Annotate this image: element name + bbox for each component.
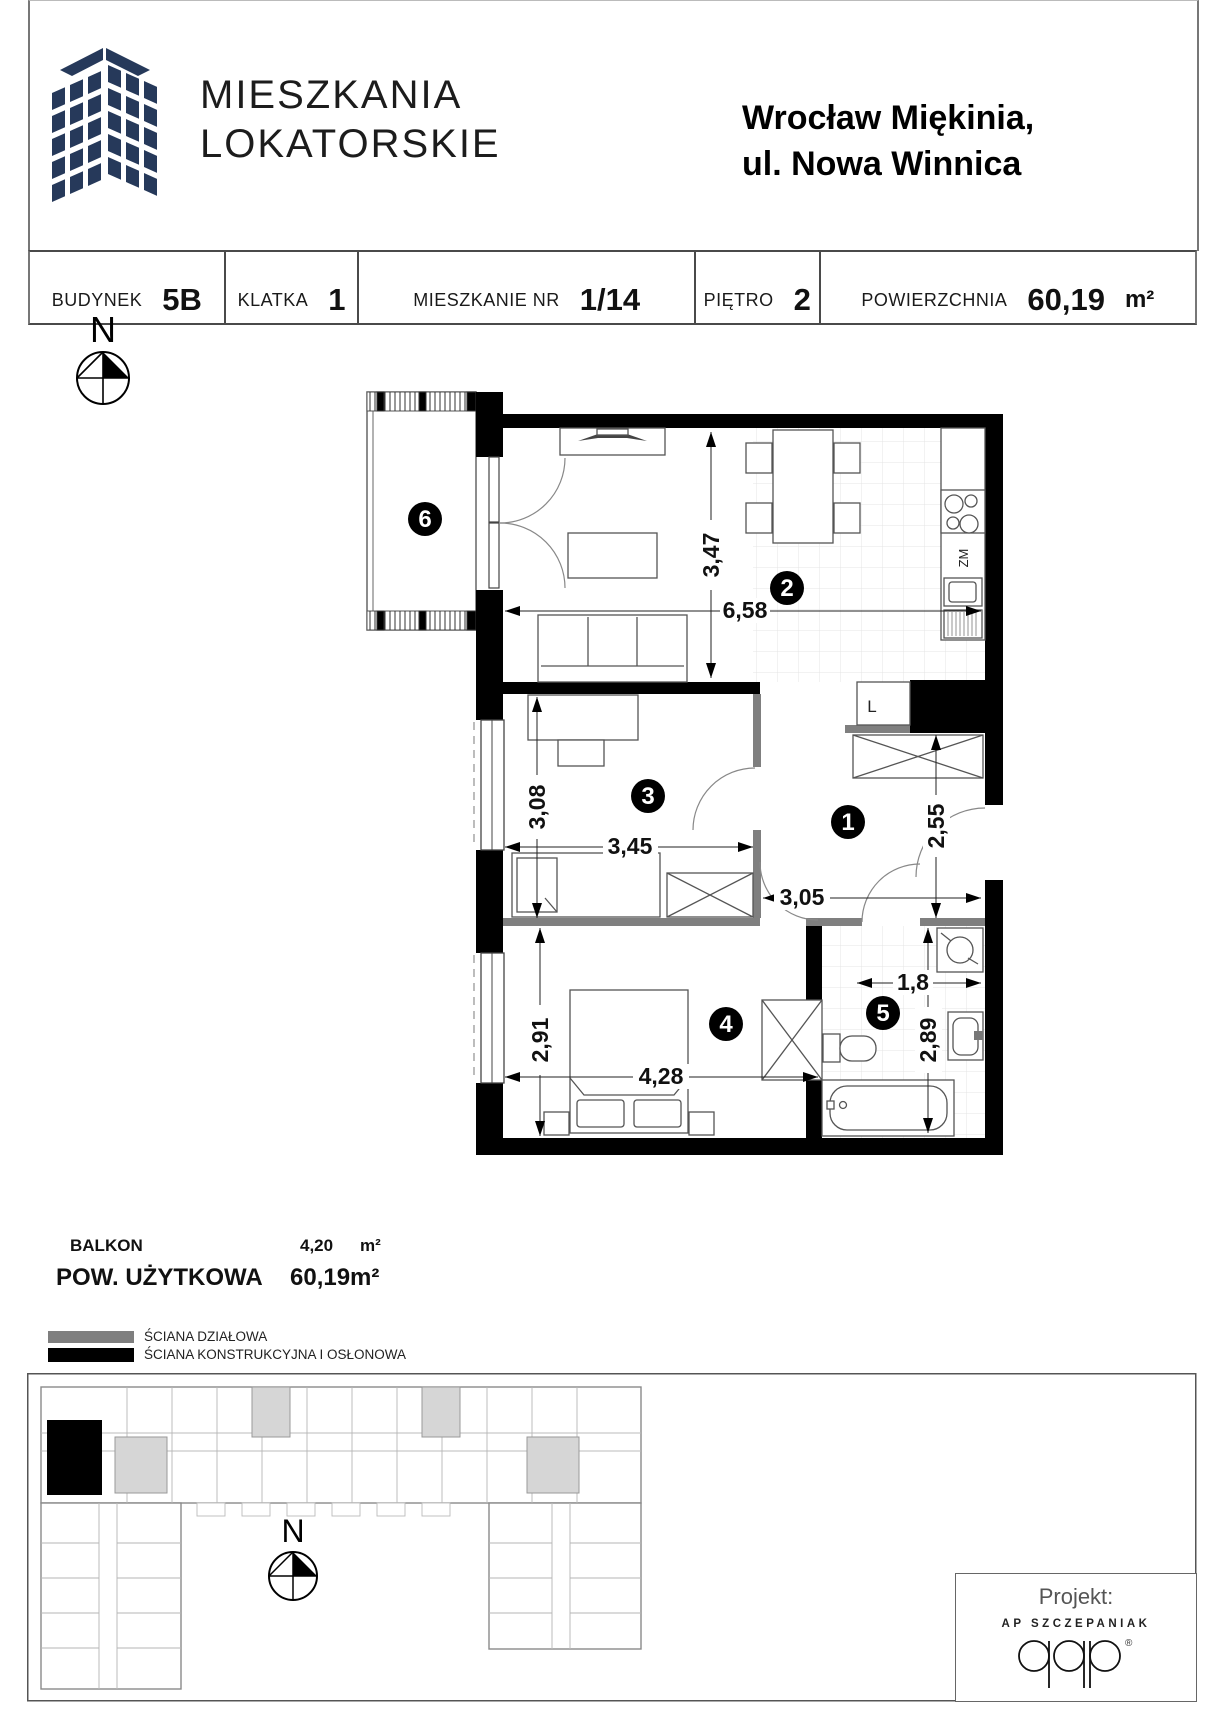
svg-text:1: 1 bbox=[841, 809, 854, 836]
room-badge-3: 3 bbox=[631, 779, 665, 813]
area-value: 60,19 bbox=[1027, 289, 1105, 311]
dining-table bbox=[773, 430, 833, 543]
balcony-railing-bottom bbox=[367, 611, 476, 630]
room-badge-5: 5 bbox=[866, 996, 900, 1030]
staircase-label: KLATKA bbox=[238, 290, 309, 311]
kitchen-counter bbox=[941, 428, 985, 640]
dishwasher-label: ZM bbox=[956, 549, 971, 568]
usable-area-label: POW. UŻYTKOWA bbox=[56, 1264, 263, 1292]
dim-hall-width: 3,05 bbox=[780, 884, 825, 910]
floor-plan: 3,47 6,58 3,08 3,45 2,55 3,05 1,8 2,91 4… bbox=[320, 300, 1020, 1170]
project-label: Projekt: bbox=[956, 1584, 1196, 1610]
structural-wall-label: ŚCIANA KONSTRUKCYJNA I OSŁONOWA bbox=[144, 1347, 406, 1362]
dim-room4-height: 2,91 bbox=[527, 1017, 553, 1062]
balcony-area-unit: m² bbox=[360, 1236, 381, 1256]
location-line2: ul. Nowa Winnica bbox=[742, 141, 1034, 187]
svg-text:3: 3 bbox=[641, 783, 654, 810]
chair bbox=[746, 503, 772, 533]
svg-text:6: 6 bbox=[418, 506, 431, 533]
sofa bbox=[538, 615, 687, 682]
partition-wall-label: ŚCIANA DZIAŁOWA bbox=[144, 1329, 267, 1344]
dim-living-width: 6,58 bbox=[723, 597, 768, 623]
brand-name: MIESZKANIA LOKATORSKIE bbox=[200, 71, 501, 169]
room-badge-2: 2 bbox=[770, 571, 804, 605]
windows bbox=[474, 457, 565, 1083]
dim-room4-width: 4,28 bbox=[639, 1063, 684, 1089]
room-badge-6: 6 bbox=[408, 502, 442, 536]
fridge bbox=[857, 682, 910, 725]
brand-building-logo-icon bbox=[46, 45, 164, 205]
balcony-area-value: 4,20 bbox=[300, 1236, 333, 1256]
chair bbox=[746, 443, 772, 473]
area-unit: m² bbox=[1125, 289, 1154, 311]
kitchen-sink bbox=[944, 578, 982, 606]
door-room3 bbox=[693, 768, 755, 830]
highlighted-apartment bbox=[47, 1420, 102, 1495]
compass-north-icon: N bbox=[56, 308, 151, 416]
dim-room3-height: 3,08 bbox=[524, 784, 550, 829]
brand-line1: MIESZKANIA bbox=[200, 71, 501, 120]
architect-name: AP SZCZEPANIAK bbox=[956, 1618, 1196, 1630]
wardrobe-room4 bbox=[762, 1000, 822, 1080]
partition-wall-swatch bbox=[48, 1331, 134, 1343]
dim-living-height: 3,47 bbox=[698, 533, 724, 578]
double-bed bbox=[570, 990, 688, 1133]
nightstand bbox=[689, 1112, 714, 1135]
room-badge-1: 1 bbox=[831, 805, 865, 839]
apartment-card-page: MIESZKANIA LOKATORSKIE Wrocław Miękinia,… bbox=[0, 0, 1225, 1732]
bath-sink bbox=[948, 1012, 983, 1060]
door-bathroom bbox=[862, 864, 920, 922]
architect-box: Projekt: AP SZCZEPANIAK ® bbox=[955, 1573, 1197, 1702]
svg-text:5: 5 bbox=[876, 1000, 889, 1027]
window-room3 bbox=[474, 720, 504, 850]
dim-bath-height: 2,89 bbox=[915, 1018, 941, 1063]
hall-wardrobe bbox=[853, 735, 983, 778]
dim-bath-width: 1,8 bbox=[897, 969, 929, 995]
room-badge-4: 4 bbox=[709, 1007, 743, 1041]
registered-mark: ® bbox=[1125, 1638, 1133, 1649]
desk bbox=[528, 695, 638, 740]
desk-chair bbox=[558, 740, 604, 766]
balcony-railing-top bbox=[367, 392, 476, 411]
tv-base bbox=[597, 429, 628, 435]
coffee-table bbox=[568, 533, 657, 578]
bathtub bbox=[822, 1080, 954, 1136]
architect-logo-icon: ® bbox=[1014, 1632, 1139, 1692]
balcony-area-label: BALKON bbox=[70, 1236, 143, 1256]
balcony-area-row: BALKON 4,20 m² bbox=[70, 1236, 400, 1256]
building-value: 5B bbox=[162, 289, 202, 311]
hob bbox=[941, 490, 985, 533]
wardrobe-room3 bbox=[667, 873, 753, 917]
window-room4 bbox=[474, 953, 504, 1083]
chair bbox=[834, 443, 860, 473]
compass-label: N bbox=[90, 309, 116, 350]
dim-room3-width: 3,45 bbox=[608, 833, 653, 859]
header: MIESZKANIA LOKATORSKIE Wrocław Miękinia,… bbox=[28, 0, 1199, 251]
toilet bbox=[823, 1034, 876, 1062]
brand-line2: LOKATORSKIE bbox=[200, 120, 501, 169]
svg-text:2: 2 bbox=[780, 575, 793, 602]
balcony-door bbox=[489, 457, 565, 588]
project-location: Wrocław Miękinia, ul. Nowa Winnica bbox=[742, 95, 1034, 187]
nightstand bbox=[544, 1112, 569, 1135]
usable-area-row: POW. UŻYTKOWA 60,19m² bbox=[56, 1264, 416, 1292]
chair bbox=[834, 503, 860, 533]
legend-partition-wall: ŚCIANA DZIAŁOWA bbox=[48, 1329, 267, 1344]
legend-structural-wall: ŚCIANA KONSTRUKCYJNA I OSŁONOWA bbox=[48, 1347, 406, 1362]
svg-text:4: 4 bbox=[719, 1011, 733, 1038]
dishwasher bbox=[944, 610, 982, 638]
fridge-label: L bbox=[867, 697, 876, 716]
site-compass-label: N bbox=[281, 1513, 304, 1549]
dim-hall-height: 2,55 bbox=[923, 803, 949, 848]
usable-area-value: 60,19m² bbox=[290, 1264, 379, 1292]
structural-wall-swatch bbox=[48, 1348, 134, 1362]
washing-machine bbox=[937, 928, 983, 972]
location-line1: Wrocław Miękinia, bbox=[742, 95, 1034, 141]
